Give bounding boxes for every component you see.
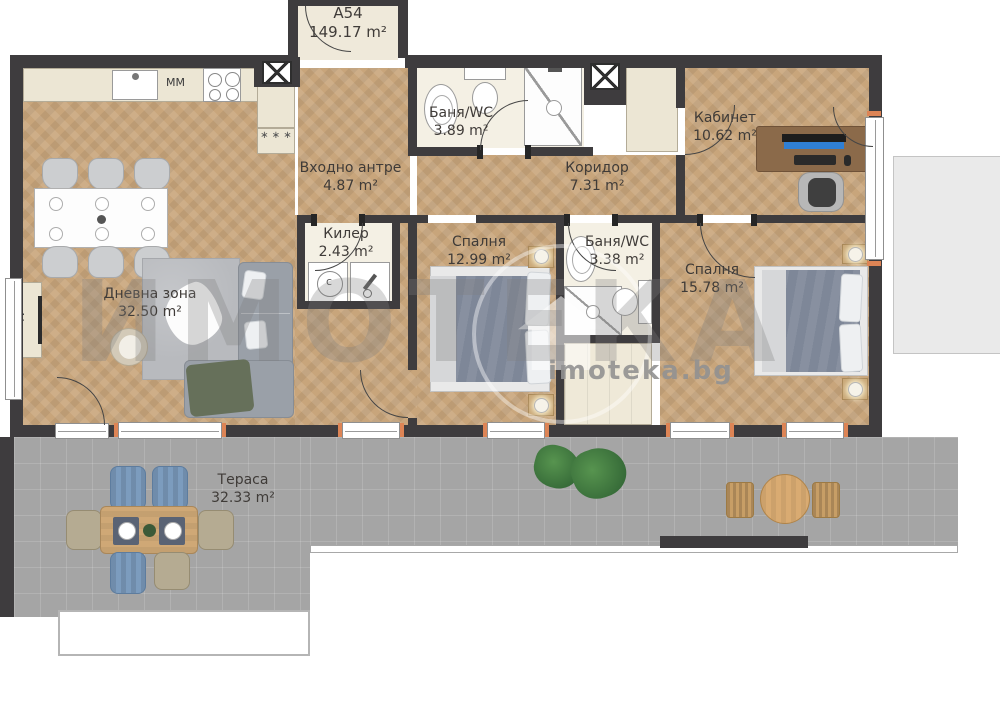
dining-chair bbox=[42, 158, 78, 190]
room-name: Коридор bbox=[538, 160, 656, 178]
terrace-chair-blue bbox=[110, 466, 146, 510]
plate bbox=[141, 227, 155, 241]
room-label-entry: Входно антре 4.87 m² bbox=[283, 160, 418, 196]
terrace-railing-dark bbox=[660, 536, 808, 548]
room-label-corridor: Коридор 7.31 m² bbox=[538, 160, 656, 196]
plate bbox=[95, 197, 109, 211]
centerpiece bbox=[143, 524, 156, 537]
window-tick bbox=[338, 423, 342, 437]
terrace-chair-wicker bbox=[198, 510, 234, 550]
wall bbox=[408, 147, 483, 156]
unit-id: A54 bbox=[293, 4, 403, 23]
plate bbox=[49, 227, 63, 241]
window bbox=[118, 422, 222, 439]
room-area: 3.89 m² bbox=[405, 123, 517, 141]
office-chair-seat bbox=[808, 178, 836, 207]
wall bbox=[530, 147, 593, 156]
room-name: Кабинет bbox=[660, 110, 790, 128]
terrace-side-wall bbox=[0, 437, 14, 617]
plate bbox=[141, 197, 155, 211]
unit-label: A54 149.17 m² bbox=[293, 4, 403, 42]
terrace-chair-blue bbox=[110, 552, 146, 594]
monitor-screen bbox=[784, 142, 844, 149]
room-name: Спалня bbox=[423, 234, 535, 252]
burner bbox=[225, 72, 240, 87]
round-table-chair bbox=[812, 482, 840, 518]
wall bbox=[363, 215, 428, 223]
window bbox=[342, 422, 400, 439]
round-table-chair bbox=[726, 482, 754, 518]
round-table bbox=[760, 474, 810, 524]
kitchen-sink bbox=[112, 70, 158, 100]
wall bbox=[676, 60, 685, 108]
room-label-closet: Килер 2.43 m² bbox=[302, 226, 390, 262]
dining-table bbox=[34, 188, 168, 248]
dining-chair bbox=[134, 158, 170, 190]
terrace-railing bbox=[310, 545, 958, 553]
terrace-door-frame bbox=[55, 423, 109, 439]
window-tick bbox=[782, 423, 786, 437]
faucet-icon bbox=[132, 73, 139, 80]
window-tick bbox=[222, 423, 226, 437]
monitor-bezel bbox=[782, 134, 846, 142]
shaft-x-icon bbox=[262, 61, 292, 84]
window-tick bbox=[400, 423, 404, 437]
burner bbox=[209, 89, 221, 101]
wall bbox=[676, 155, 685, 223]
website-watermark: imoteka.bg bbox=[548, 356, 734, 386]
window bbox=[786, 422, 844, 439]
window-tick bbox=[730, 423, 734, 437]
wall bbox=[476, 215, 568, 223]
terrace-chair-wicker bbox=[154, 552, 190, 590]
floor-plan: ∗ ∗ ∗ MM TV bbox=[0, 0, 1000, 723]
burner bbox=[226, 88, 239, 101]
room-area: 10.62 m² bbox=[660, 128, 790, 146]
terrace-table bbox=[100, 506, 198, 554]
window-tick bbox=[114, 423, 118, 437]
terrace-lower-landing bbox=[58, 610, 310, 656]
room-name: Баня/WC bbox=[405, 105, 517, 123]
window-tick bbox=[666, 423, 670, 437]
room-name: Входно антре bbox=[283, 160, 418, 178]
window bbox=[670, 422, 730, 439]
stove bbox=[203, 68, 241, 102]
plate bbox=[118, 522, 136, 540]
wall bbox=[405, 55, 882, 68]
shower-drain bbox=[546, 100, 562, 116]
window-tick bbox=[483, 423, 487, 437]
plate bbox=[95, 227, 109, 241]
window-tick bbox=[545, 423, 549, 437]
plate bbox=[49, 197, 63, 211]
room-area: 4.87 m² bbox=[283, 178, 418, 196]
window bbox=[5, 278, 22, 400]
mouse bbox=[844, 155, 851, 166]
shaft-x-icon bbox=[590, 63, 620, 90]
room-area: 32.33 m² bbox=[182, 490, 304, 508]
room-name: Тераса bbox=[182, 472, 304, 490]
wall bbox=[10, 55, 293, 68]
tv-screen bbox=[38, 296, 42, 344]
room-label-cabinet: Кабинет 10.62 m² bbox=[660, 110, 790, 146]
burner bbox=[208, 73, 222, 87]
dining-chair bbox=[88, 158, 124, 190]
centerpiece bbox=[97, 215, 106, 224]
window bbox=[487, 422, 545, 439]
room-label-bath1: Баня/WC 3.89 m² bbox=[405, 105, 517, 141]
room-label-terrace: Тераса 32.33 m² bbox=[182, 472, 304, 508]
wall bbox=[755, 215, 882, 223]
unit-area: 149.17 m² bbox=[293, 23, 403, 42]
office-chair bbox=[798, 172, 844, 212]
freezer-marks: ∗ ∗ ∗ bbox=[258, 130, 294, 141]
terrace-floor-right bbox=[310, 437, 958, 545]
terrace-chair-wicker bbox=[66, 510, 102, 550]
wall bbox=[408, 418, 417, 425]
wall bbox=[616, 215, 700, 223]
room-area: 7.31 m² bbox=[538, 178, 656, 196]
keyboard bbox=[794, 155, 836, 165]
room-name: Килер bbox=[302, 226, 390, 244]
plate bbox=[164, 522, 182, 540]
window-tick bbox=[844, 423, 848, 437]
brand-watermark: ИМОТЕКА bbox=[72, 258, 952, 388]
microwave-label: MM bbox=[166, 76, 185, 89]
